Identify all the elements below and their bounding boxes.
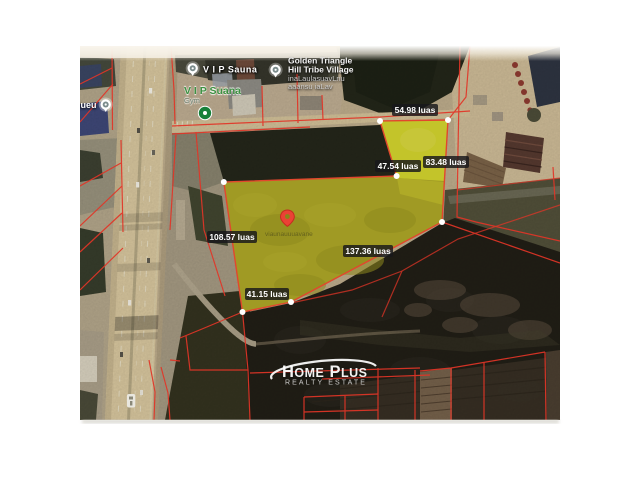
- svg-text:HOME PLUS: HOME PLUS: [282, 363, 368, 381]
- svg-text:47.54 luas: 47.54 luas: [378, 161, 419, 171]
- svg-text:83.48 luas: 83.48 luas: [426, 157, 467, 167]
- svg-text:Gym: Gym: [184, 96, 200, 105]
- svg-text:137.36 luas: 137.36 luas: [345, 246, 391, 256]
- svg-text:lueu: lueu: [78, 100, 97, 110]
- svg-text:REALTY ESTATE: REALTY ESTATE: [285, 380, 367, 387]
- svg-text:54.98 luas: 54.98 luas: [395, 105, 436, 115]
- svg-text:108.57 luas: 108.57 luas: [209, 232, 255, 242]
- svg-text:Hill Tribe Village: Hill Tribe Village: [288, 65, 354, 75]
- svg-text:aaansu iaLav: aaansu iaLav: [288, 82, 333, 91]
- svg-text:viaunauuuavane: viaunauuuavane: [265, 231, 313, 238]
- svg-text:41.15 luas: 41.15 luas: [247, 289, 288, 299]
- svg-text:V I P Sauna: V I P Sauna: [203, 65, 258, 75]
